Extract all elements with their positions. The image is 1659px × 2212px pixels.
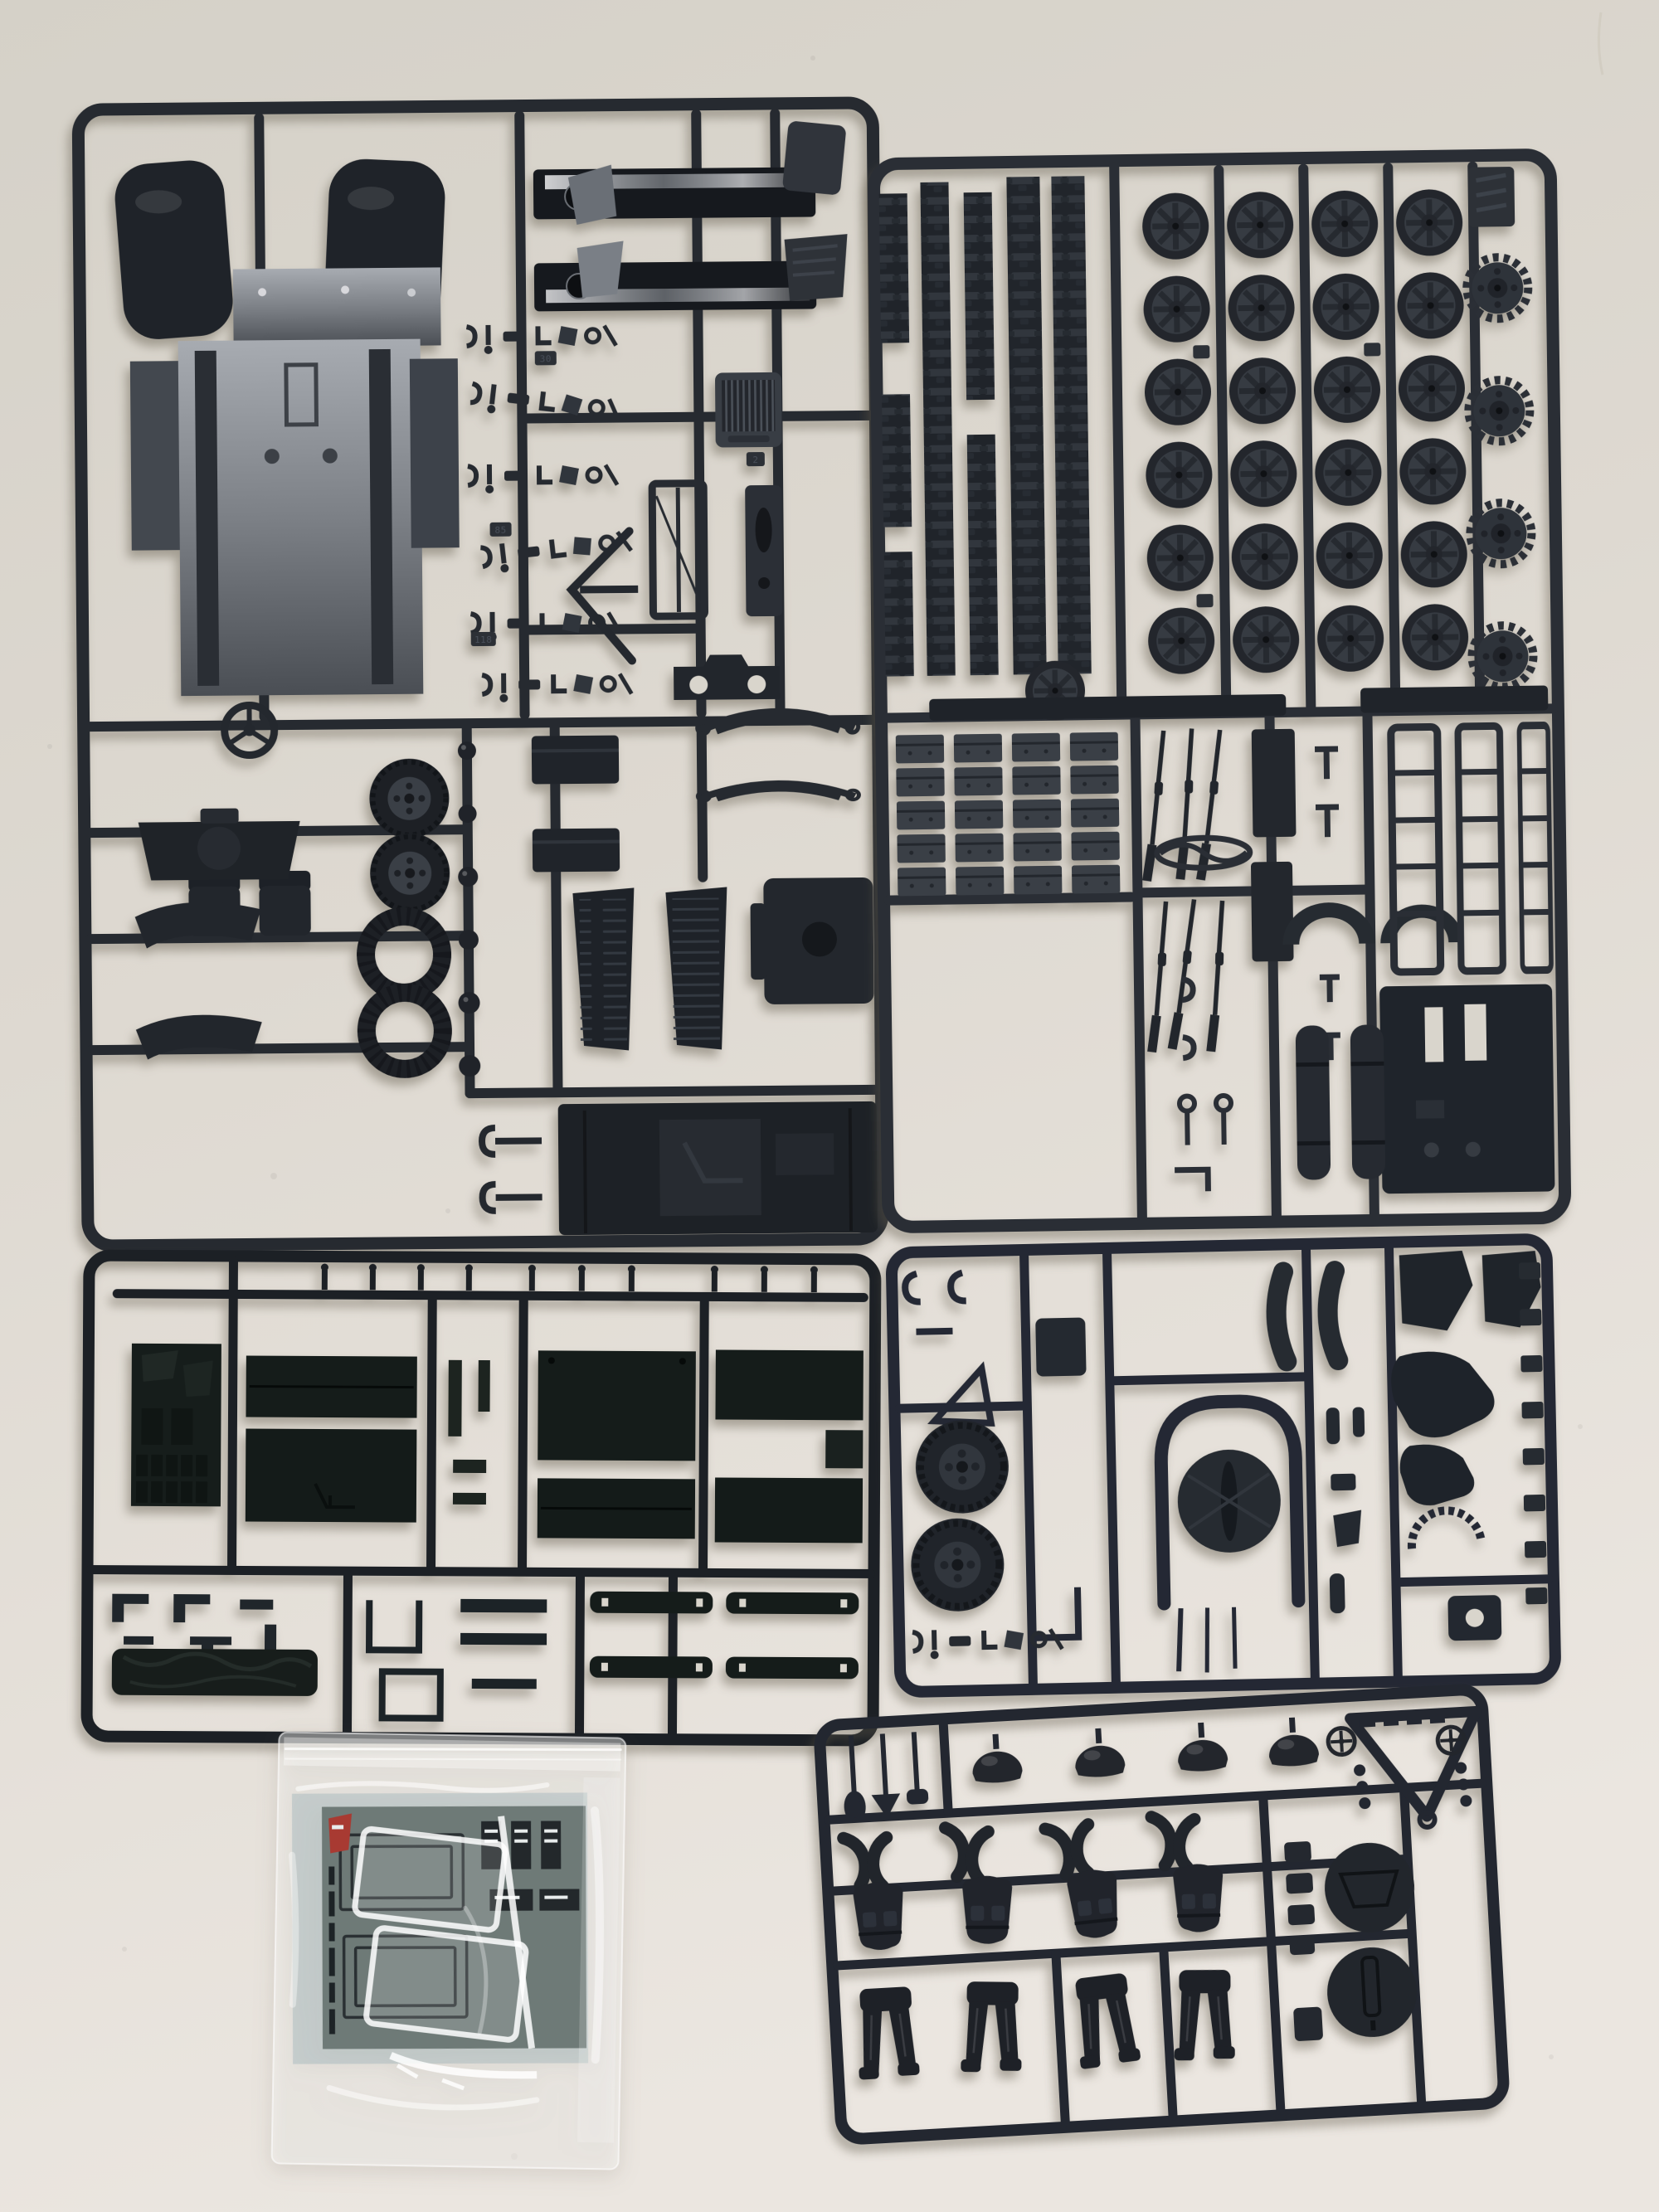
crate (1071, 799, 1119, 828)
fender-left (113, 158, 236, 342)
crate (1072, 865, 1120, 894)
firewall-plate (233, 267, 441, 347)
small-square-panel (825, 1430, 863, 1468)
louvred-plate (785, 234, 849, 301)
torso (853, 1880, 906, 1951)
crate (1071, 832, 1119, 861)
handwheel (1437, 1726, 1465, 1754)
bag-contents (292, 1792, 588, 2088)
crate (896, 735, 944, 764)
part-number-118: 118 (474, 634, 492, 645)
rocker-right (410, 358, 460, 547)
crate (955, 834, 1003, 863)
crate (898, 868, 946, 897)
part-number-30: 30 (540, 353, 552, 364)
torso (1173, 1864, 1224, 1932)
radio-box-panel (1251, 862, 1294, 962)
grey-funnel-part (577, 241, 625, 297)
clear-parts-bag (271, 1732, 625, 2169)
wheel-with-tyre (369, 758, 450, 839)
crate (954, 767, 1002, 796)
radio-box-panel (1252, 729, 1297, 838)
part-number-85: 85 (494, 525, 506, 536)
crate (1070, 732, 1118, 761)
crate (1012, 766, 1060, 795)
gun-barrel (1178, 1608, 1183, 1671)
crate (955, 800, 1003, 829)
handwheel (1327, 1728, 1355, 1756)
crate (954, 734, 1002, 763)
bed-front-panel (538, 1350, 696, 1461)
stake-beam-2 (1360, 685, 1548, 712)
crate (1070, 766, 1118, 795)
crate (897, 834, 945, 863)
radiator-grille (715, 372, 782, 448)
crate (897, 801, 945, 830)
torso (962, 1876, 1012, 1944)
crate (1012, 733, 1060, 762)
rocker-left (130, 361, 180, 550)
wheel-with-tyre (370, 833, 450, 913)
part-number-2: 2 (752, 455, 758, 465)
pedestal-part (1035, 1317, 1086, 1376)
bed-panel (715, 1477, 863, 1543)
crate (1014, 866, 1062, 895)
slotted-floor-panel (1379, 984, 1554, 1194)
crate (1013, 833, 1061, 862)
photo-of-model-kit-sprues: 85 118 30 2 (0, 0, 1659, 2212)
dashboard-panel (745, 485, 782, 616)
gun-barrel (1206, 1607, 1209, 1672)
bed-panel (715, 1349, 863, 1420)
firewall-block (750, 878, 873, 1004)
cab-back-panel (131, 1344, 221, 1507)
zip-seal (284, 1738, 621, 1772)
crate (1013, 800, 1061, 829)
gun-barrel (1234, 1607, 1236, 1669)
tarpaulin-roll (112, 1649, 318, 1696)
crate (956, 867, 1004, 896)
cargo-bed-floor-panel (558, 1101, 878, 1235)
decal-red-mark (328, 1813, 352, 1853)
bracket-with-hole (1447, 1595, 1501, 1641)
crate (896, 768, 944, 797)
seat-back-part (782, 120, 847, 195)
